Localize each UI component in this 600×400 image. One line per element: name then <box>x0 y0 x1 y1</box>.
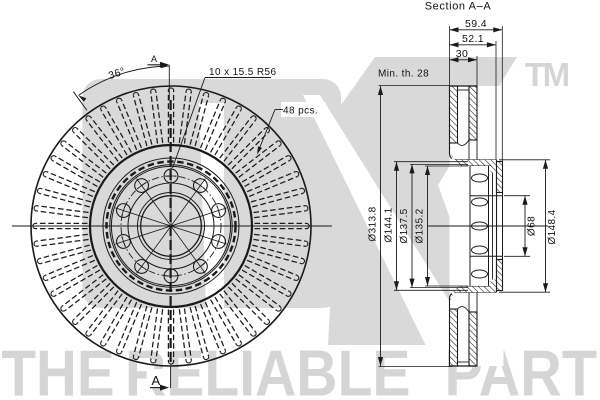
svg-text:Ø135.2: Ø135.2 <box>414 208 425 243</box>
svg-text:Ø137.5: Ø137.5 <box>399 208 410 243</box>
svg-text:52.1: 52.1 <box>462 33 484 45</box>
svg-text:TM: TM <box>525 56 569 93</box>
svg-text:Ø313.8: Ø313.8 <box>367 206 378 241</box>
svg-text:Ø144.1: Ø144.1 <box>383 207 394 242</box>
svg-text:59.4: 59.4 <box>465 18 487 30</box>
svg-text:Section A–A: Section A–A <box>425 1 492 13</box>
svg-text:A: A <box>152 373 161 388</box>
svg-text:Ø68: Ø68 <box>527 216 538 236</box>
svg-text:48 pcs.: 48 pcs. <box>283 106 318 117</box>
svg-text:Ø148.4: Ø148.4 <box>547 209 558 244</box>
svg-text:10 x 15.5 R56: 10 x 15.5 R56 <box>209 67 277 78</box>
svg-text:30: 30 <box>456 48 468 60</box>
svg-text:A: A <box>151 54 157 64</box>
svg-text:Min. th. 28: Min. th. 28 <box>378 69 429 80</box>
